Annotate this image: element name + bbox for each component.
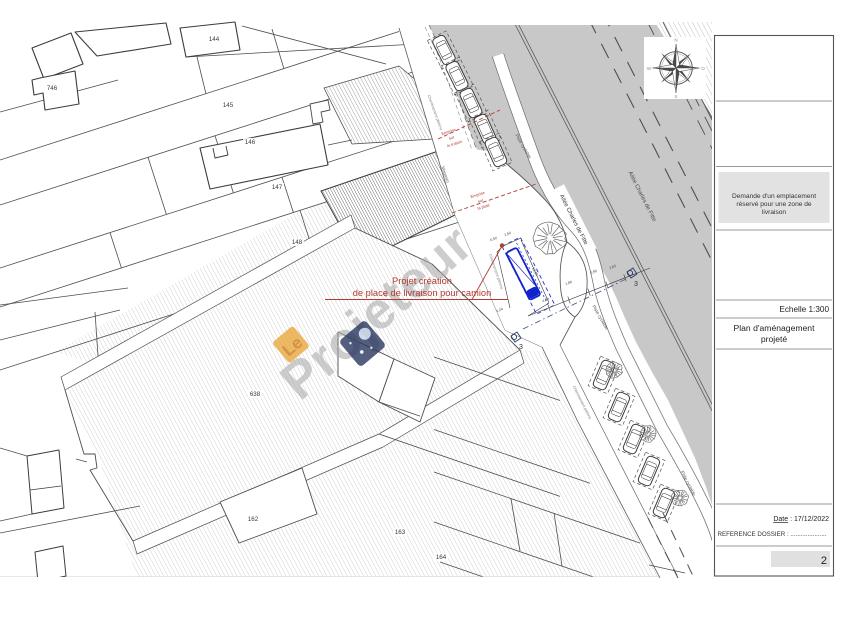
svg-text:N: N xyxy=(674,38,677,43)
svg-text:146: 146 xyxy=(245,139,256,146)
svg-text:3: 3 xyxy=(519,344,523,351)
svg-text:réservé pour une zone de: réservé pour une zone de xyxy=(736,201,811,208)
svg-text:144: 144 xyxy=(209,36,220,43)
svg-text:746: 746 xyxy=(47,85,58,92)
svg-text:O: O xyxy=(701,66,705,71)
svg-text:projeté: projeté xyxy=(761,334,787,344)
svg-text:de place de livraison pour cam: de place de livraison pour camion xyxy=(353,288,492,298)
svg-text:3: 3 xyxy=(634,281,638,288)
svg-text:148: 148 xyxy=(292,239,303,246)
svg-text:147: 147 xyxy=(272,184,283,191)
svg-text:Plan d'aménagement: Plan d'aménagement xyxy=(734,323,816,333)
svg-text:W: W xyxy=(647,66,652,71)
svg-text:livraison: livraison xyxy=(762,209,787,216)
svg-text:162: 162 xyxy=(248,516,259,523)
svg-text:145: 145 xyxy=(223,102,234,109)
svg-text:163: 163 xyxy=(395,529,406,536)
svg-text:S: S xyxy=(674,94,677,99)
svg-text:Date : 17/12/2022: Date : 17/12/2022 xyxy=(773,516,829,523)
svg-text:Demande d'un emplacement: Demande d'un emplacement xyxy=(732,193,816,200)
svg-text:164: 164 xyxy=(436,554,447,561)
svg-text:Projet création: Projet création xyxy=(392,276,452,286)
svg-text:Echelle 1:300: Echelle 1:300 xyxy=(779,305,829,314)
svg-text:REFERENCE DOSSIER : ..........: REFERENCE DOSSIER : ....................… xyxy=(718,531,827,538)
svg-text:2: 2 xyxy=(821,555,827,567)
svg-text:638: 638 xyxy=(250,391,261,398)
